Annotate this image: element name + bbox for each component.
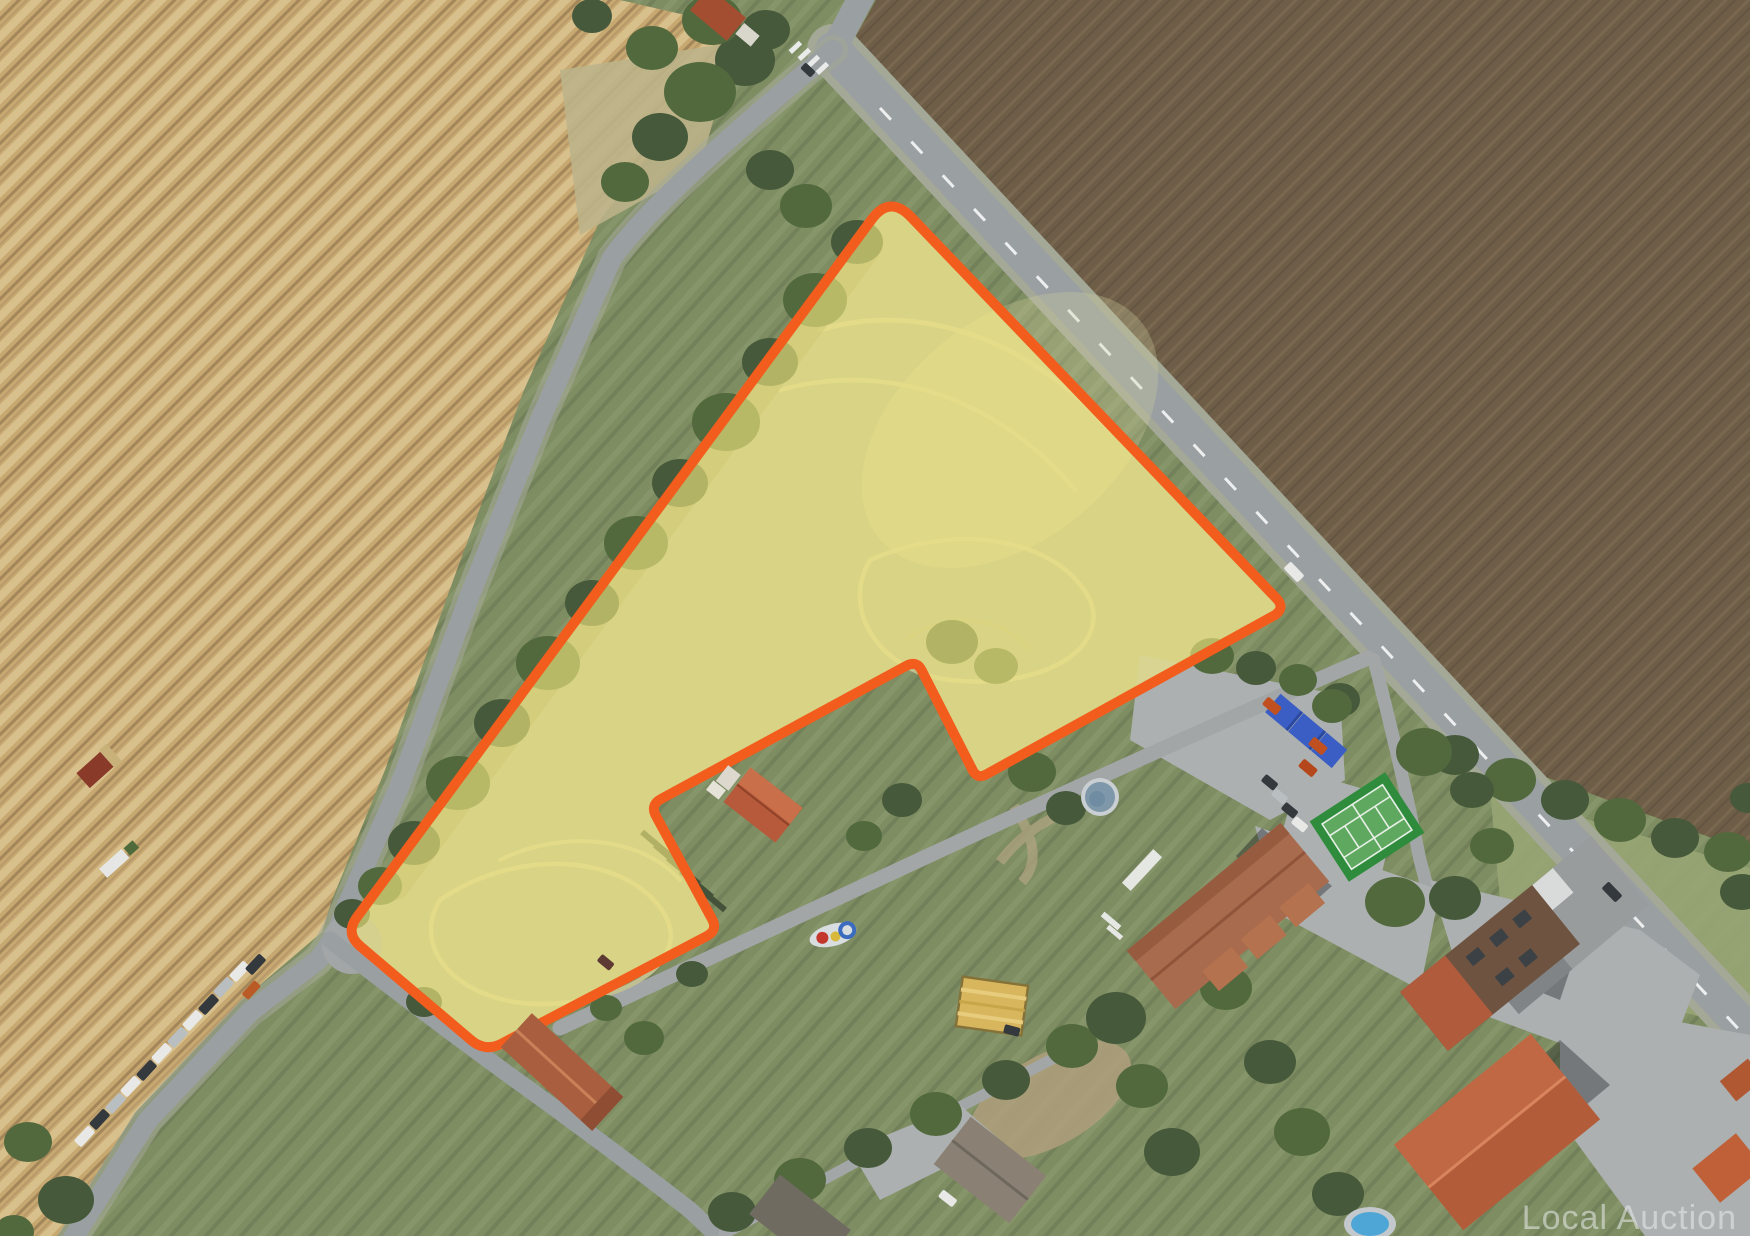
tree-canopy	[626, 26, 678, 70]
tree-canopy	[1365, 877, 1425, 927]
hay-square	[956, 977, 1028, 1036]
tree-canopy	[1116, 1064, 1168, 1108]
tree-canopy	[572, 0, 612, 33]
tree-canopy	[982, 1060, 1030, 1100]
tree-canopy	[601, 162, 649, 202]
swimming-pool	[1081, 778, 1119, 816]
tree-canopy	[1704, 832, 1750, 872]
tree-canopy	[882, 783, 922, 817]
tree-canopy	[846, 821, 882, 851]
tree-canopy	[708, 1192, 756, 1232]
tree-canopy	[1312, 1172, 1364, 1216]
tree-canopy	[844, 1128, 892, 1168]
tree-canopy	[746, 150, 794, 190]
tree-canopy	[38, 1176, 94, 1224]
tree-canopy	[1651, 818, 1699, 858]
tree-canopy	[676, 961, 708, 987]
tree-canopy	[1541, 780, 1589, 820]
tree-canopy	[1279, 664, 1317, 696]
tree-canopy	[1429, 876, 1481, 920]
tree-canopy	[1144, 1128, 1200, 1176]
tree-canopy	[1236, 651, 1276, 685]
watermark-text: Local Auction	[1522, 1199, 1737, 1236]
aerial-map-view: Local Auction	[0, 0, 1750, 1236]
tree-canopy	[632, 113, 688, 161]
tree-canopy	[1274, 1108, 1330, 1156]
tree-canopy	[1396, 728, 1452, 776]
tree-canopy	[1086, 992, 1146, 1044]
tree-canopy	[624, 1021, 664, 1055]
tree-canopy	[1244, 1040, 1296, 1084]
tree-canopy	[1450, 772, 1494, 808]
tree-canopy	[780, 184, 832, 228]
tree-canopy	[1594, 798, 1646, 842]
tree-canopy	[4, 1122, 52, 1162]
satellite-map: Local Auction	[0, 0, 1750, 1236]
tree-canopy	[664, 62, 736, 122]
tree-canopy	[910, 1092, 962, 1136]
tree-canopy	[1046, 791, 1086, 825]
tree-canopy	[1470, 828, 1514, 864]
tree-canopy	[1312, 689, 1352, 723]
